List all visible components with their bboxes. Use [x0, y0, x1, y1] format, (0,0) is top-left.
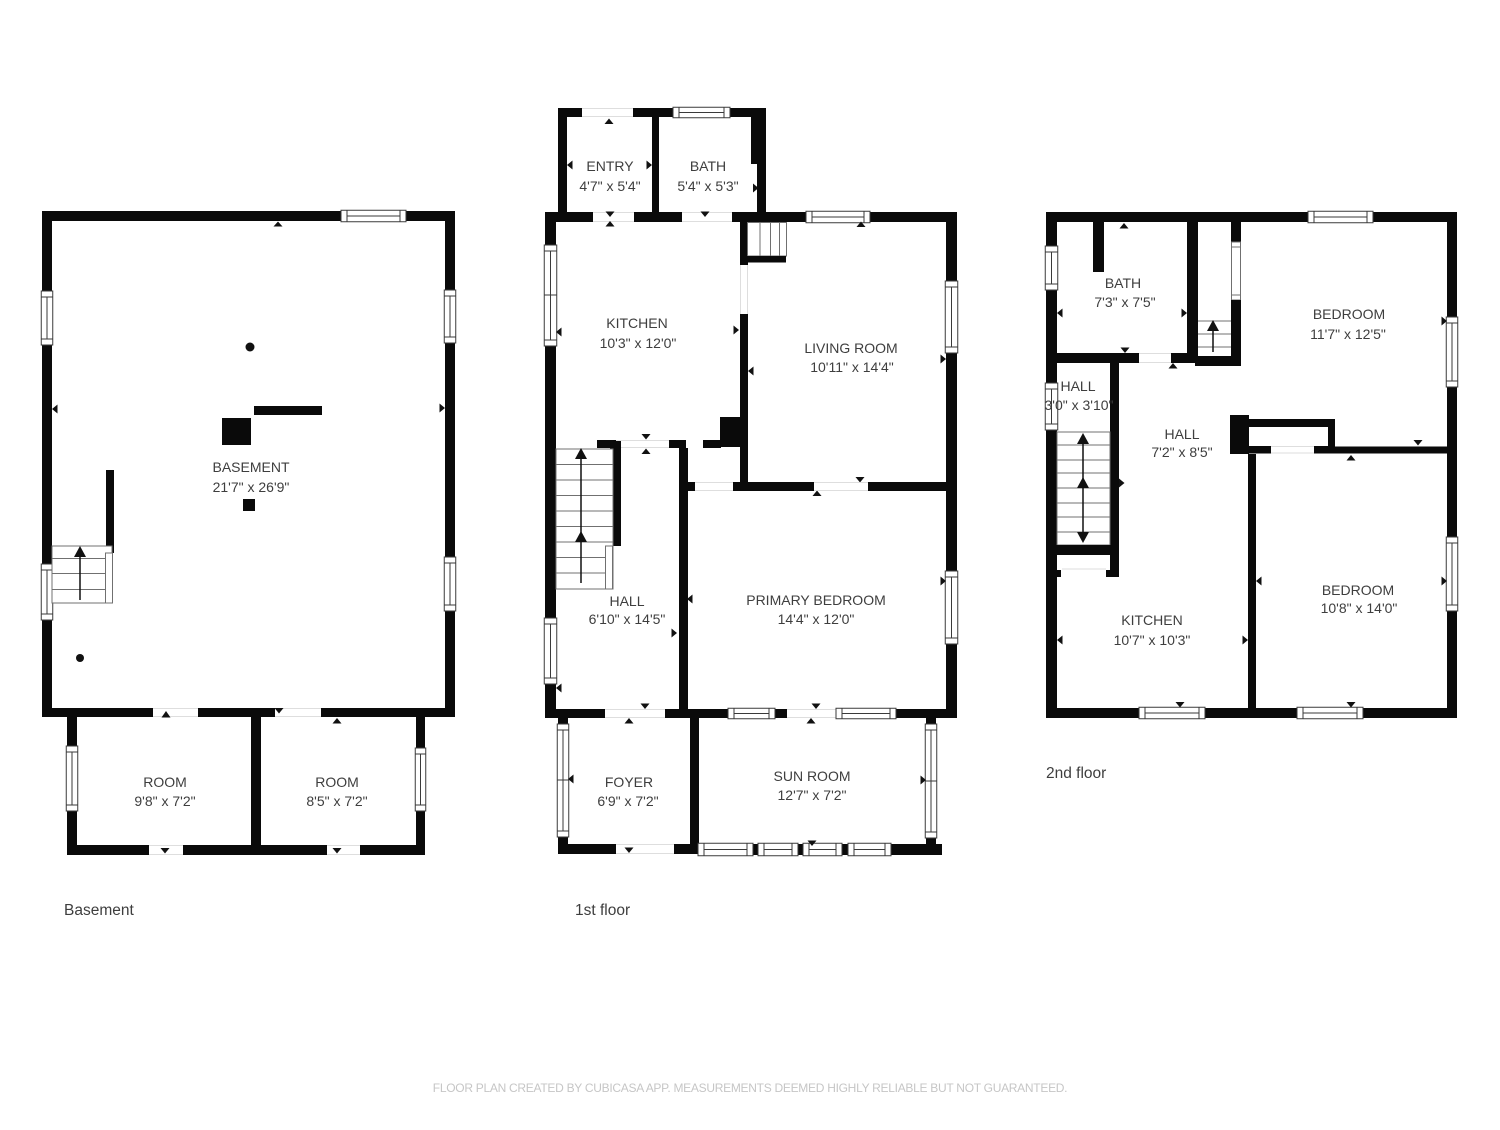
svg-text:9'8" x 7'2": 9'8" x 7'2"	[134, 793, 195, 809]
svg-text:ENTRY: ENTRY	[586, 158, 634, 174]
svg-text:7'2" x 8'5": 7'2" x 8'5"	[1151, 444, 1212, 460]
svg-text:BEDROOM: BEDROOM	[1313, 306, 1385, 322]
svg-text:14'4" x 12'0": 14'4" x 12'0"	[778, 611, 855, 627]
svg-text:10'11" x 14'4": 10'11" x 14'4"	[810, 359, 894, 375]
svg-text:LIVING ROOM: LIVING ROOM	[804, 340, 897, 356]
svg-text:BEDROOM: BEDROOM	[1322, 582, 1394, 598]
svg-text:FLOOR PLAN CREATED BY CUBICASA: FLOOR PLAN CREATED BY CUBICASA APP. MEAS…	[433, 1081, 1067, 1095]
svg-text:FOYER: FOYER	[605, 774, 653, 790]
svg-text:6'10" x 14'5": 6'10" x 14'5"	[589, 611, 666, 627]
svg-text:11'7" x 12'5": 11'7" x 12'5"	[1310, 326, 1386, 342]
svg-text:ROOM: ROOM	[143, 774, 187, 790]
svg-text:3'0" x 3'10": 3'0" x 3'10"	[1045, 397, 1114, 413]
svg-text:ROOM: ROOM	[315, 774, 359, 790]
svg-text:HALL: HALL	[1060, 378, 1095, 394]
svg-text:Basement: Basement	[64, 902, 134, 919]
svg-text:BASEMENT: BASEMENT	[212, 459, 289, 475]
svg-text:KITCHEN: KITCHEN	[606, 315, 667, 331]
svg-text:10'3" x 12'0": 10'3" x 12'0"	[600, 335, 677, 351]
svg-text:4'7" x 5'4": 4'7" x 5'4"	[579, 178, 640, 194]
svg-text:7'3" x 7'5": 7'3" x 7'5"	[1094, 294, 1155, 310]
svg-text:SUN ROOM: SUN ROOM	[774, 768, 851, 784]
svg-text:PRIMARY BEDROOM: PRIMARY BEDROOM	[746, 592, 886, 608]
svg-text:12'7" x 7'2": 12'7" x 7'2"	[778, 787, 847, 803]
svg-text:2nd floor: 2nd floor	[1046, 765, 1106, 782]
svg-text:1st floor: 1st floor	[575, 902, 630, 919]
svg-text:21'7" x 26'9": 21'7" x 26'9"	[213, 479, 290, 495]
svg-text:10'7" x 10'3": 10'7" x 10'3"	[1114, 632, 1191, 648]
svg-text:6'9" x 7'2": 6'9" x 7'2"	[597, 793, 658, 809]
svg-text:8'5" x 7'2": 8'5" x 7'2"	[306, 793, 367, 809]
svg-text:HALL: HALL	[1164, 426, 1199, 442]
svg-text:10'8" x 14'0": 10'8" x 14'0"	[1321, 600, 1398, 616]
svg-text:5'4" x 5'3": 5'4" x 5'3"	[677, 178, 738, 194]
svg-text:BATH: BATH	[690, 158, 726, 174]
svg-text:BATH: BATH	[1105, 275, 1141, 291]
svg-text:KITCHEN: KITCHEN	[1121, 612, 1182, 628]
svg-text:HALL: HALL	[609, 593, 644, 609]
